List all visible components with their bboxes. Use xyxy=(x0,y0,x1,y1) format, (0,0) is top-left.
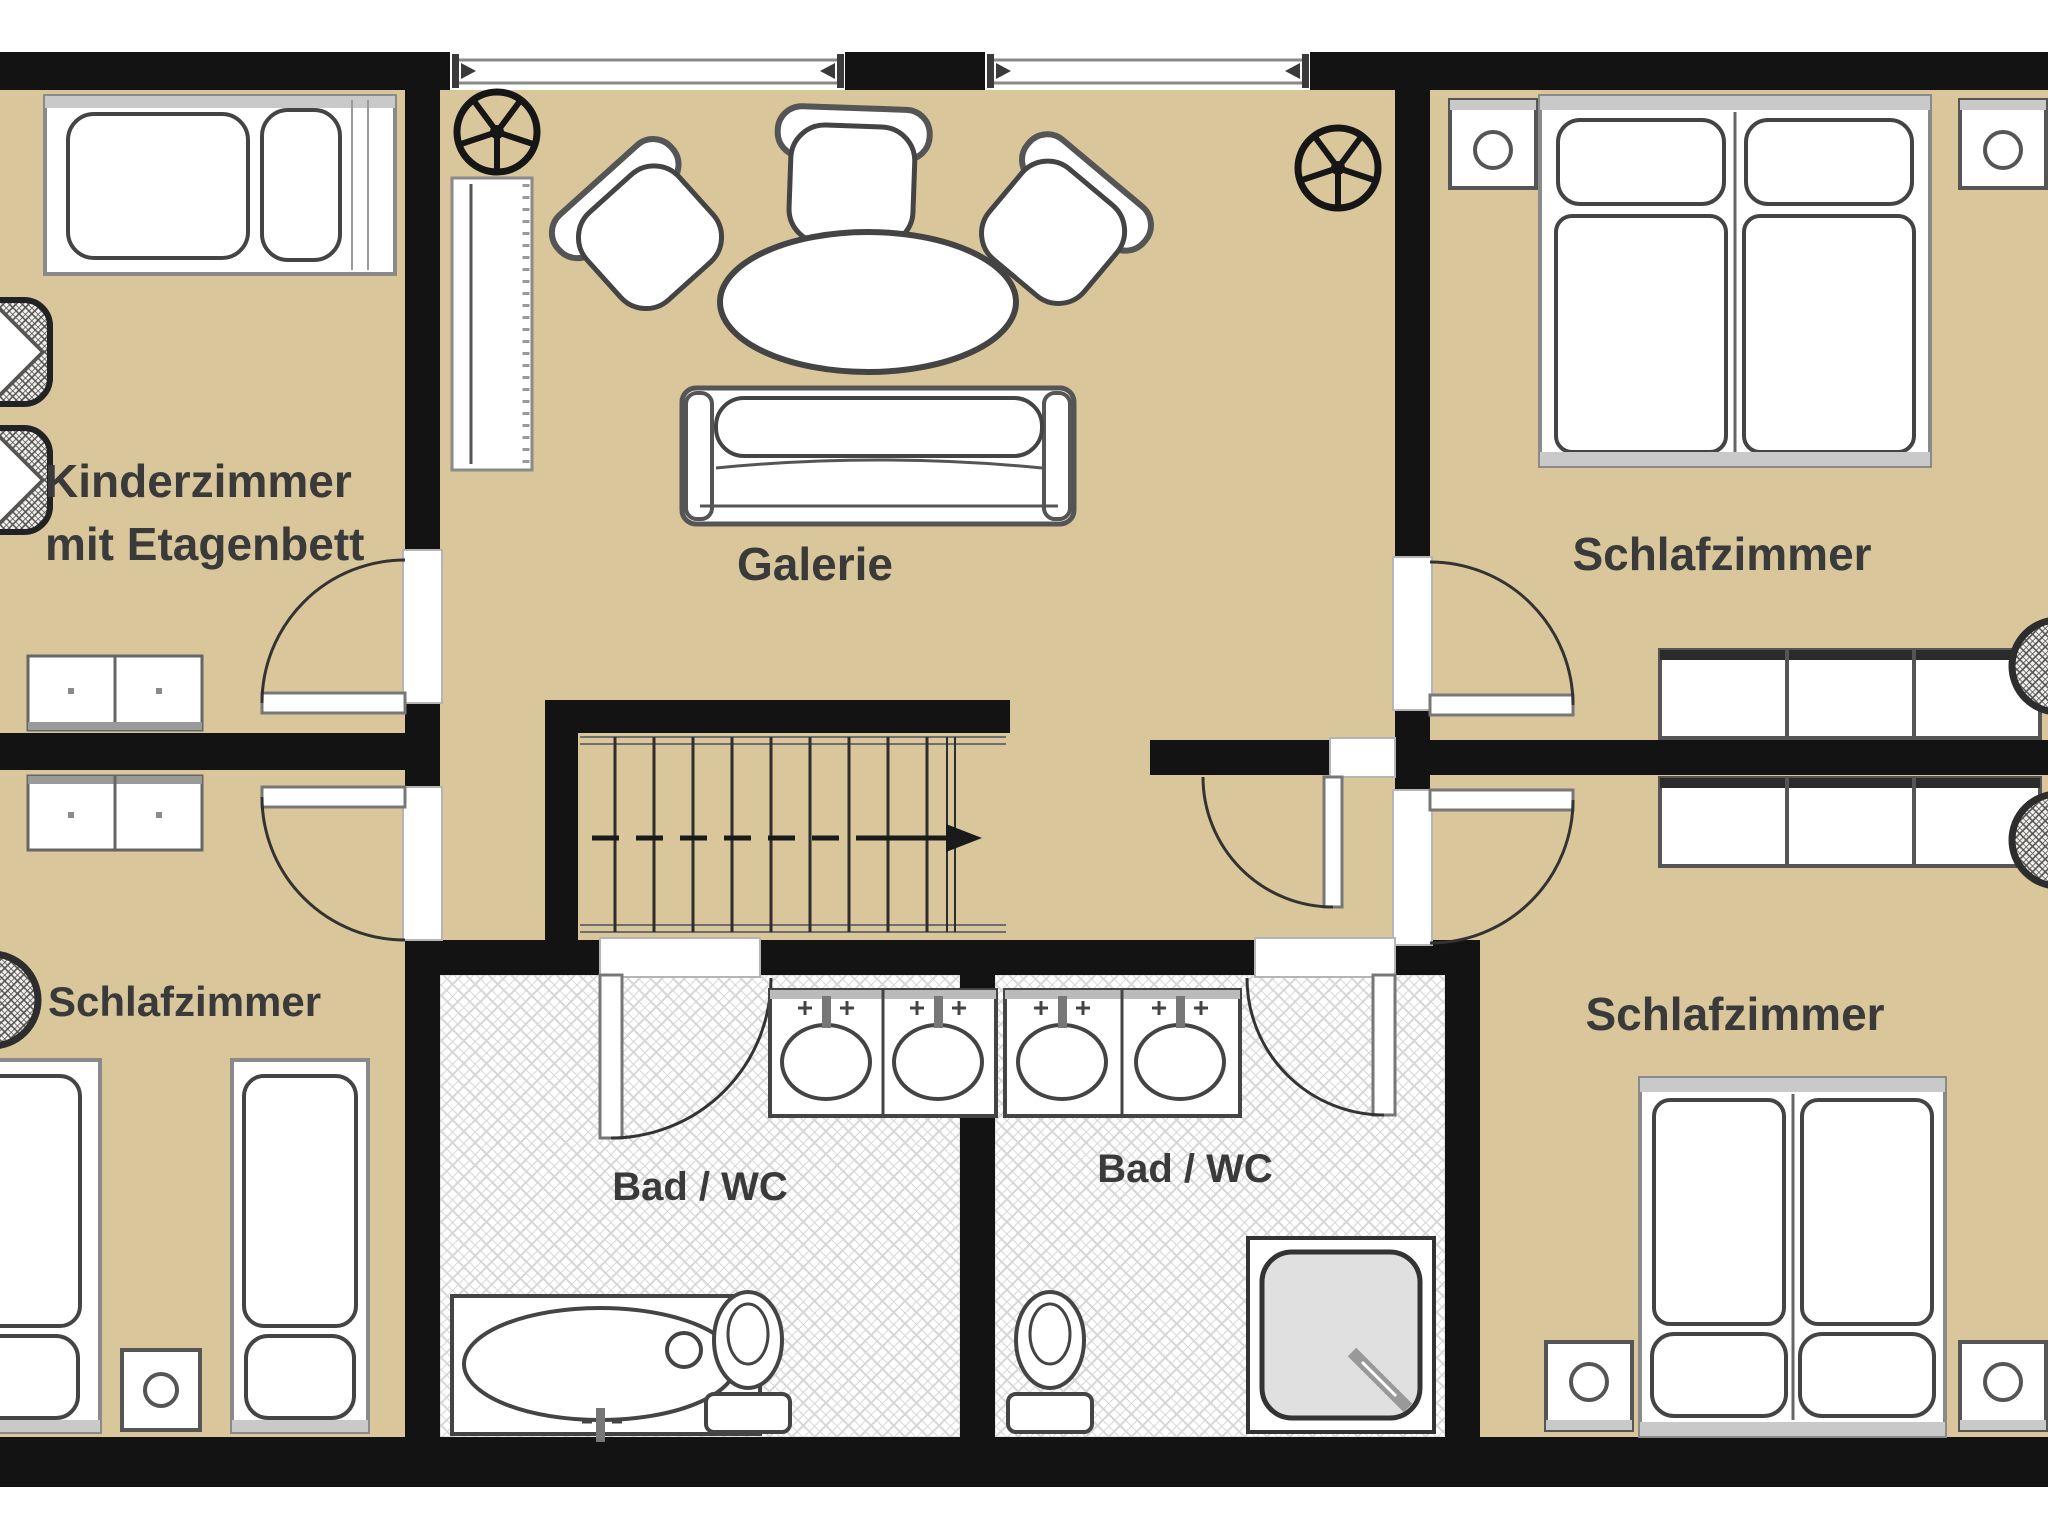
shower-icon xyxy=(1248,1238,1434,1432)
floor-plan: Kinderzimmer mit Etagenbett Galerie xyxy=(0,0,2048,1538)
wall-top-right xyxy=(1310,52,2048,90)
label-bad-wc-left: Bad / WC xyxy=(612,1165,788,1209)
toilet-icon xyxy=(1008,1292,1092,1432)
wall-stairs-left xyxy=(545,700,578,940)
wardrobe-icon xyxy=(1660,778,2040,866)
wall-left-vertical xyxy=(405,90,440,550)
washbasin-icon xyxy=(770,990,996,1116)
door-leaf xyxy=(1430,790,1573,810)
door-leaf xyxy=(600,975,622,1138)
armchair-icon xyxy=(774,105,931,246)
nightstand-icon xyxy=(1450,100,1536,188)
double-bed-icon xyxy=(1540,96,1930,466)
door-leaf xyxy=(1373,975,1395,1115)
double-bed-icon xyxy=(1640,1078,1945,1436)
wall-right-rooms-divider xyxy=(1430,740,2048,775)
label-kinderzimmer-line2: mit Etagenbett xyxy=(45,518,364,570)
wardrobe-icon xyxy=(1660,650,2040,738)
wall-left-rooms-divider xyxy=(0,733,405,770)
label-schlafzimmer-bottom-left: Schlafzimmer xyxy=(48,978,321,1025)
wall-top-pier xyxy=(845,52,985,90)
wall-right-vertical xyxy=(1395,710,1430,790)
coffee-table-icon xyxy=(720,232,1016,372)
wall-bath-right xyxy=(1445,975,1480,1437)
wall-hall-stub xyxy=(1150,740,1330,775)
dresser-icon xyxy=(28,656,202,730)
sofa-icon xyxy=(682,388,1074,524)
dresser-icon xyxy=(28,776,202,850)
label-kinderzimmer-line1: Kinderzimmer xyxy=(45,455,352,507)
wall-left-vertical xyxy=(405,940,440,1437)
wall-bottom xyxy=(0,1437,2048,1487)
label-bad-wc-right: Bad / WC xyxy=(1097,1147,1273,1191)
bunk-bed-icon xyxy=(45,96,395,274)
nightstand-icon xyxy=(1546,1342,1632,1430)
door-leaf xyxy=(1430,695,1573,715)
door-leaf xyxy=(262,693,405,713)
door-leaf xyxy=(262,787,405,807)
washbasin-icon xyxy=(1005,990,1240,1116)
shelf-icon xyxy=(452,178,532,470)
nightstand-icon xyxy=(122,1350,200,1430)
label-schlafzimmer-bottom-right: Schlafzimmer xyxy=(1585,988,1884,1040)
wall-bath-top xyxy=(760,940,1255,975)
toilet-icon xyxy=(706,1292,790,1432)
wall-stairs-top xyxy=(545,700,1010,733)
label-schlafzimmer-top-right: Schlafzimmer xyxy=(1572,528,1871,580)
wall-right-vertical xyxy=(1395,90,1430,557)
label-galerie: Galerie xyxy=(737,538,893,590)
armchair-icon xyxy=(0,428,50,532)
armchair-icon xyxy=(0,300,50,404)
wall-bath-top xyxy=(405,940,600,975)
single-bed-icon xyxy=(0,1060,100,1432)
nightstand-icon xyxy=(1960,1342,2046,1430)
wall-left-vertical xyxy=(405,703,440,787)
door-leaf xyxy=(1324,777,1342,907)
wall-top-left xyxy=(0,52,450,90)
single-bed-icon xyxy=(232,1060,368,1432)
nightstand-icon xyxy=(1960,100,2046,188)
